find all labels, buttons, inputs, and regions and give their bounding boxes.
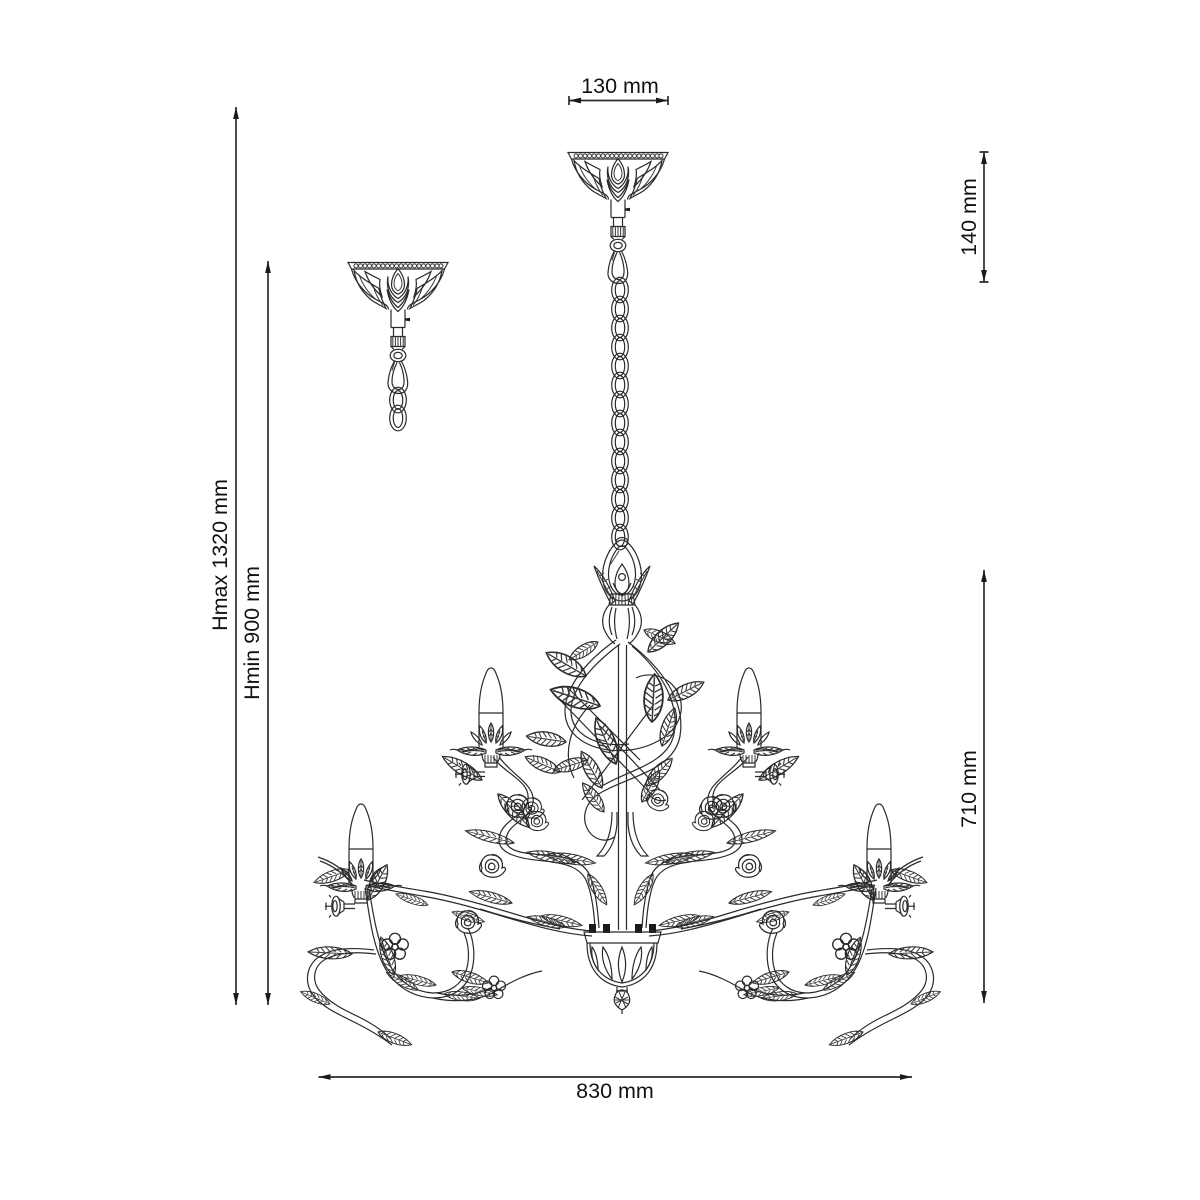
svg-text:140 mm: 140 mm	[957, 178, 981, 256]
svg-text:130 mm: 130 mm	[581, 74, 659, 98]
svg-text:Hmin 900 mm: Hmin 900 mm	[240, 566, 264, 700]
svg-text:830 mm: 830 mm	[576, 1079, 654, 1103]
svg-text:Hmax 1320 mm: Hmax 1320 mm	[208, 479, 232, 631]
svg-text:710 mm: 710 mm	[957, 750, 981, 828]
